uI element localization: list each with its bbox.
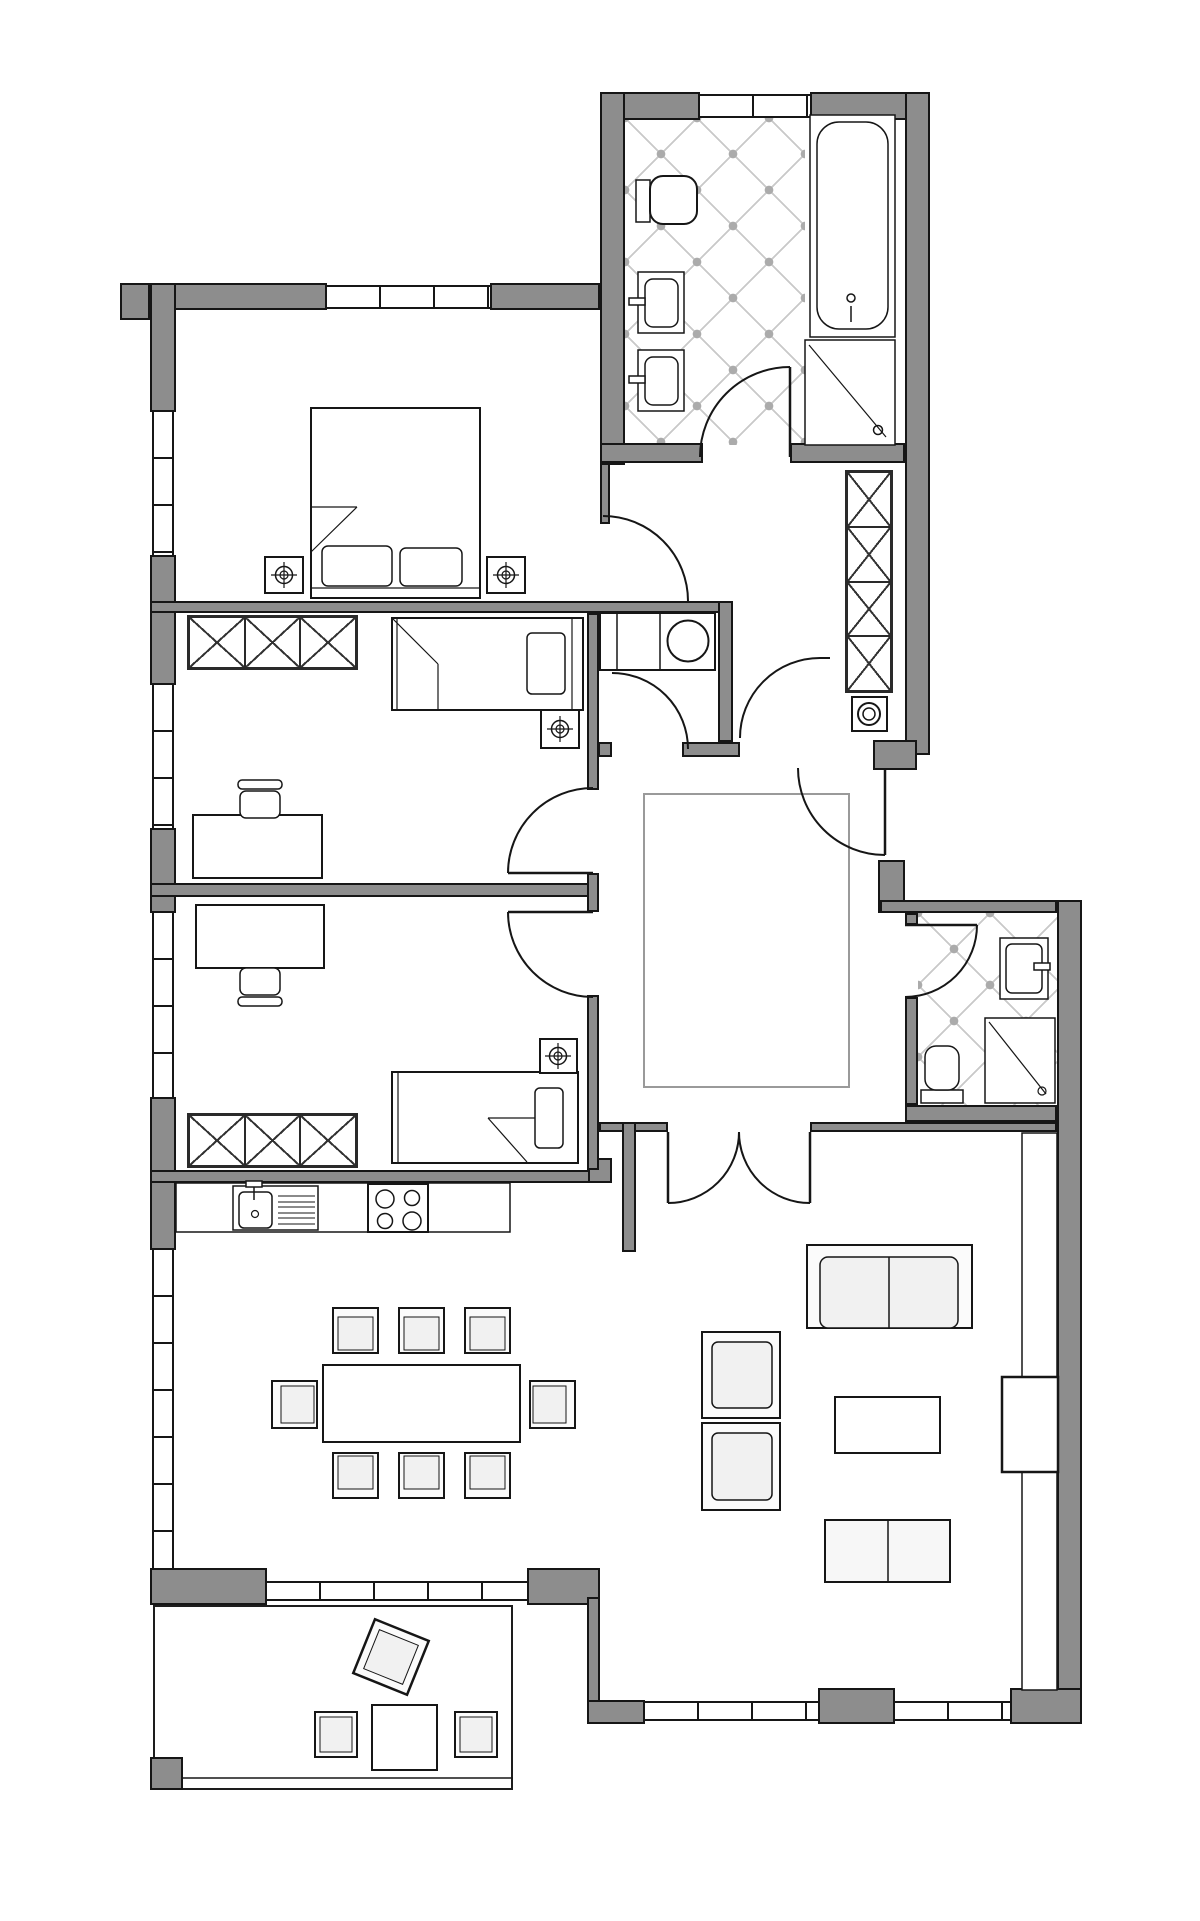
sink-main-2-tap xyxy=(629,376,645,383)
dining-chair-b1-seat xyxy=(338,1456,373,1489)
master-pillow-right xyxy=(400,548,462,586)
door-kids1-arc xyxy=(508,788,593,873)
toilet-small-bowl xyxy=(925,1046,959,1090)
desk-chair2-back xyxy=(238,997,282,1006)
kitchen-counter xyxy=(176,1183,510,1232)
dining-chair-left-seat xyxy=(281,1386,314,1423)
coffee-table xyxy=(835,1397,940,1453)
armchair-2-seat xyxy=(712,1433,772,1500)
dining-chair-b2-seat xyxy=(404,1456,439,1489)
floor-plan xyxy=(0,0,1200,1921)
door-master-bedroom-arc xyxy=(603,516,688,601)
sink-main-2-basin xyxy=(645,357,678,405)
fireplace-unit xyxy=(1002,1377,1058,1472)
terrace-table xyxy=(372,1705,437,1770)
sink-small-tap xyxy=(1034,963,1050,970)
bathtub-inner xyxy=(817,122,888,329)
kitchen-hob xyxy=(368,1184,428,1232)
armchair-1-seat xyxy=(712,1342,772,1408)
dining-chair-b3-seat xyxy=(470,1456,505,1489)
toilet-main-bowl xyxy=(650,176,697,224)
desk-chair1-seat xyxy=(240,791,280,818)
toilet-small-tank xyxy=(921,1090,963,1103)
double-door-left-arc xyxy=(668,1132,739,1203)
desk-chair1-back xyxy=(238,780,282,789)
master-pillow-left xyxy=(322,546,392,586)
dining-chair-t1-seat xyxy=(338,1317,373,1350)
kitchen-tap xyxy=(246,1181,262,1187)
terrace-chair-left-seat xyxy=(320,1717,352,1752)
door-main-bath-arc xyxy=(700,367,790,457)
door-hall-corridor-arc xyxy=(740,658,820,738)
dining-chair-right-seat xyxy=(533,1386,566,1423)
kids1-pillow xyxy=(527,633,565,694)
dining-table xyxy=(323,1365,520,1442)
sink-main-1-basin xyxy=(645,279,678,327)
dining-chair-t3-seat xyxy=(470,1317,505,1350)
kids2-pillow xyxy=(535,1088,563,1148)
desk-kids2 xyxy=(196,905,324,968)
double-door-right-arc xyxy=(739,1132,810,1203)
desk-kids1 xyxy=(193,815,322,878)
door-kids2-arc xyxy=(508,912,593,997)
toilet-main-tank xyxy=(636,180,650,222)
door-utility-arc xyxy=(612,673,688,749)
furniture-and-doors-layer xyxy=(0,0,1200,1921)
desk-chair2-seat xyxy=(240,968,280,995)
door-small-bath-arc xyxy=(905,925,977,997)
terrace-chair-right-seat xyxy=(460,1717,492,1752)
sink-main-1-tap xyxy=(629,298,645,305)
dining-chair-t2-seat xyxy=(404,1317,439,1350)
door-entrance-arc xyxy=(798,768,885,855)
